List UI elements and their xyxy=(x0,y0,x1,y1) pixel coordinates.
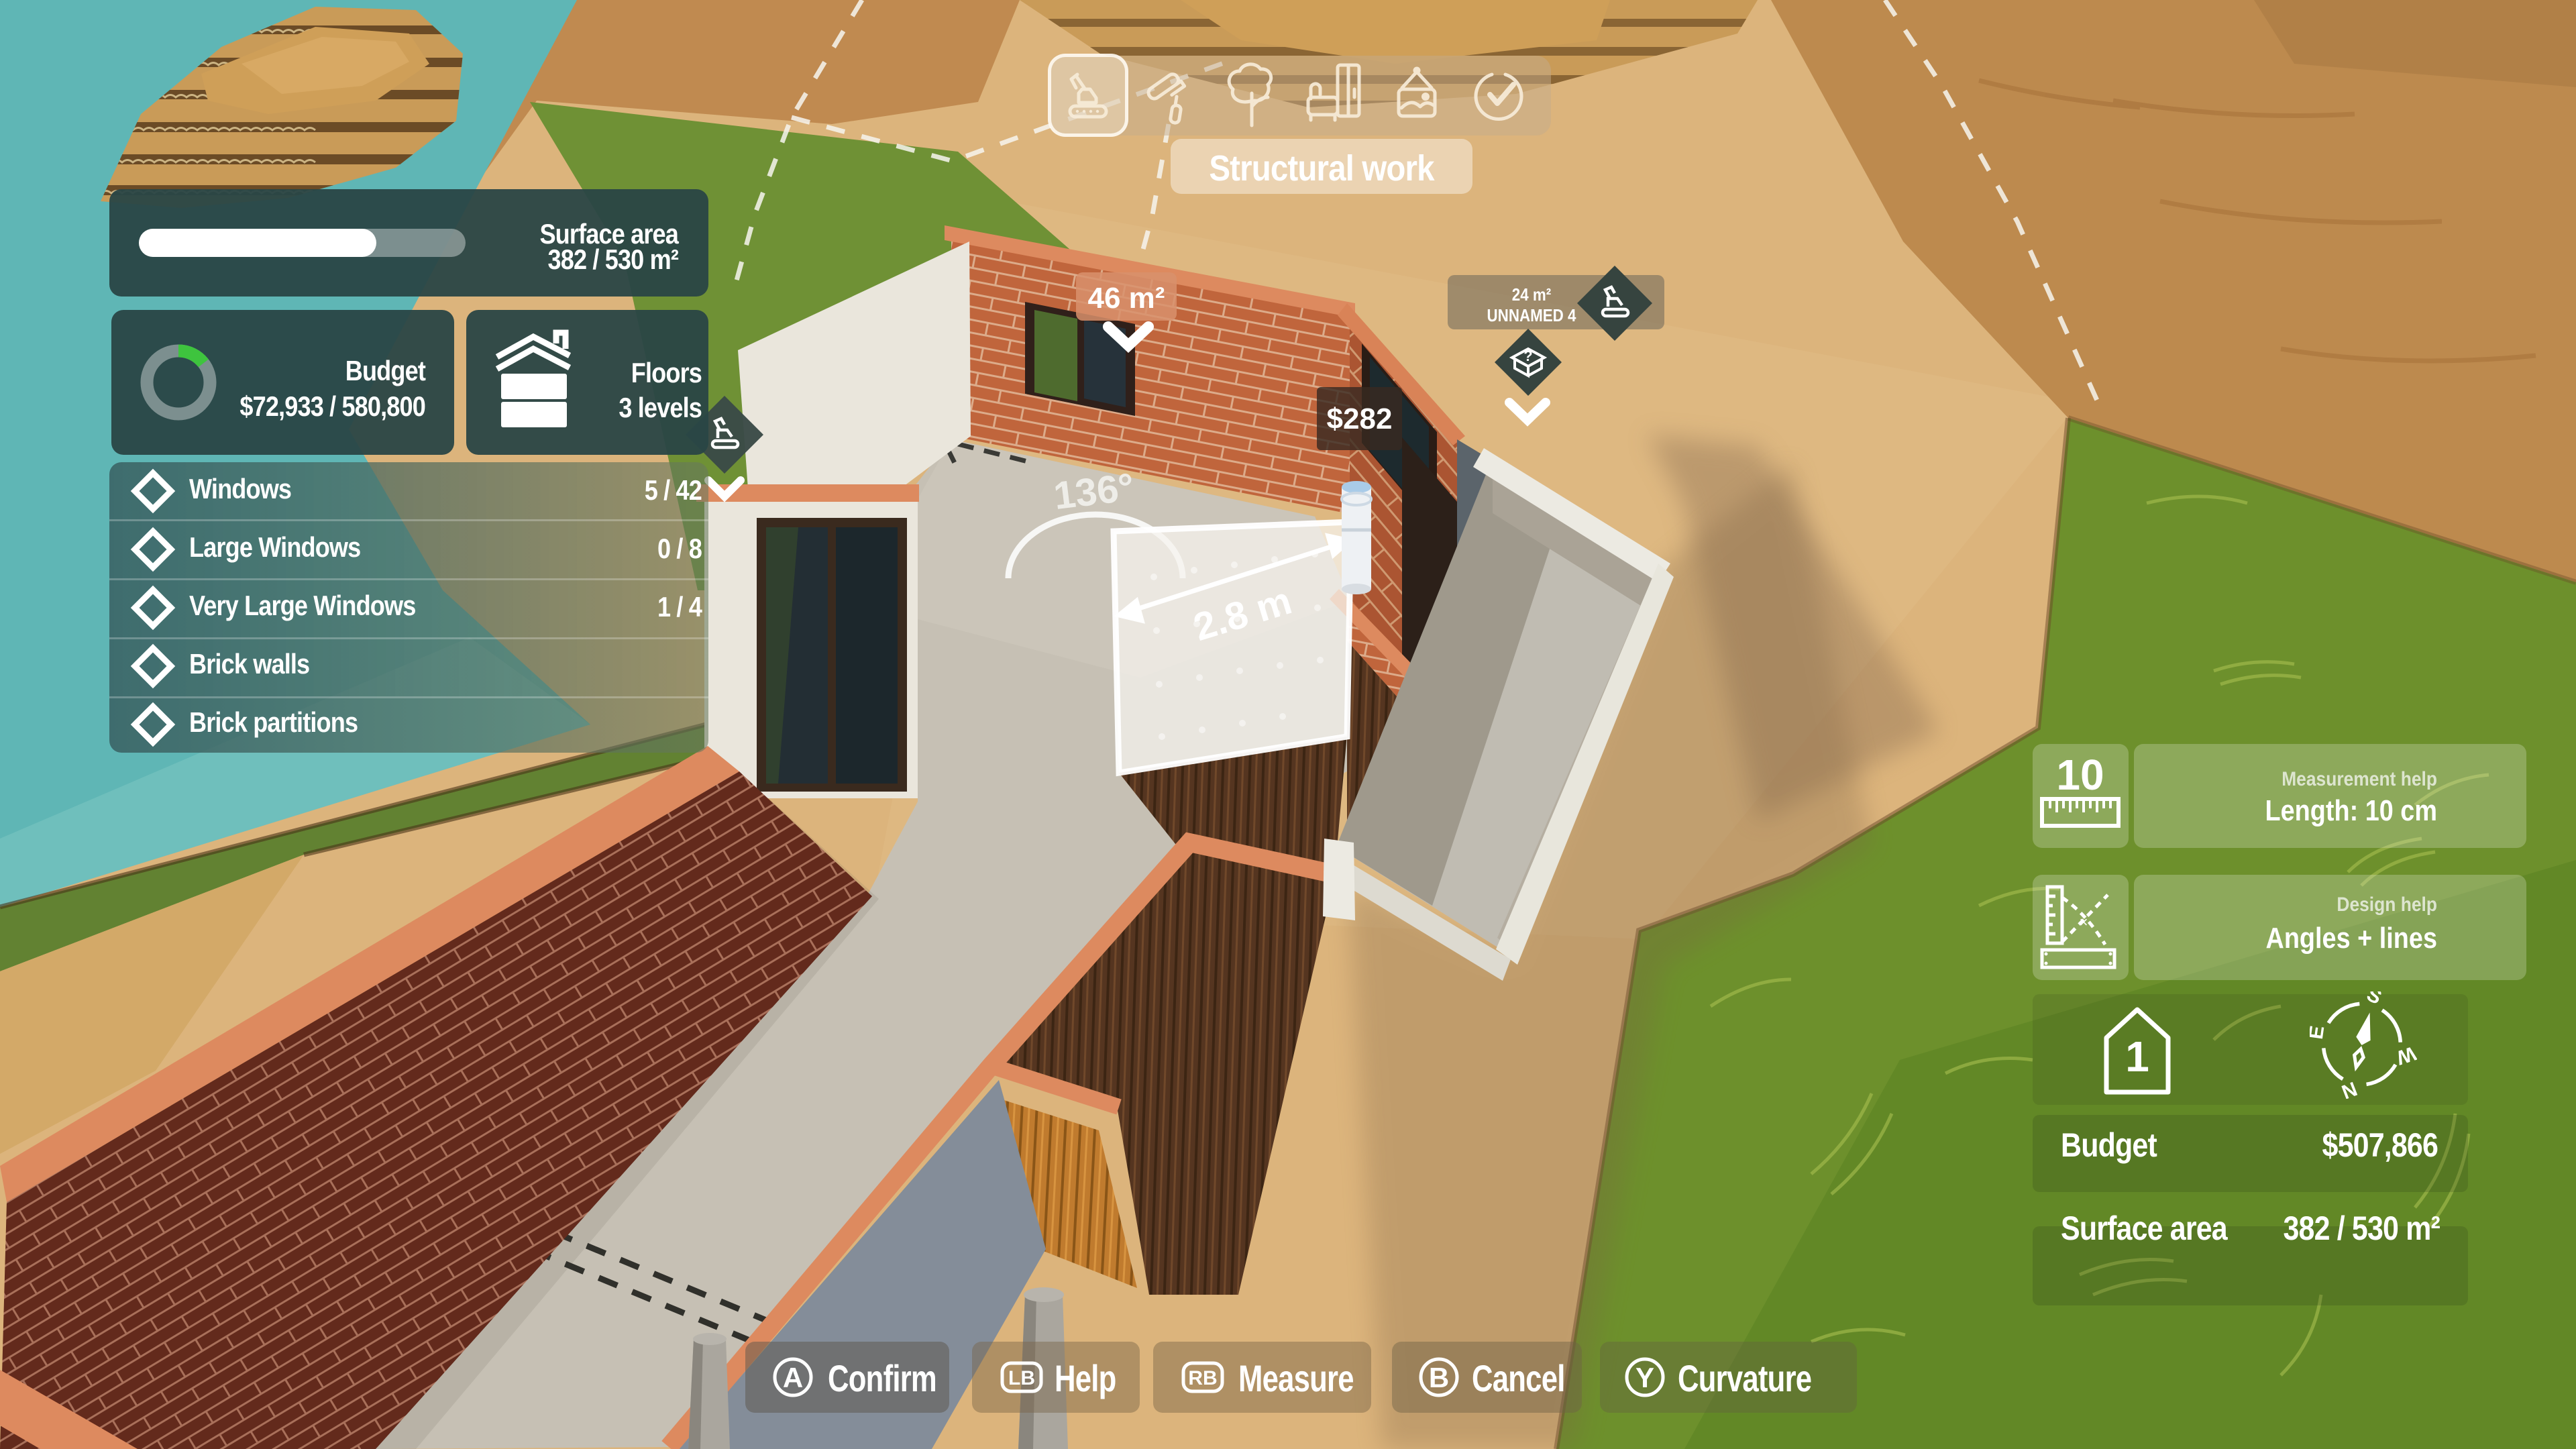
svg-text:S: S xyxy=(2363,991,2385,1009)
svg-text:N: N xyxy=(2339,1078,2361,1099)
svg-text:×: × xyxy=(2080,914,2088,930)
svg-text:Y: Y xyxy=(1635,1362,1654,1393)
svg-text:?: ? xyxy=(1523,347,1532,364)
svg-text:RB: RB xyxy=(1188,1367,1217,1389)
svg-text:A: A xyxy=(783,1362,803,1393)
svg-text:W: W xyxy=(2394,1042,2417,1069)
svg-text:10: 10 xyxy=(2056,751,2104,799)
svg-text:LB: LB xyxy=(1008,1367,1035,1389)
svg-text:E: E xyxy=(2310,1024,2328,1040)
svg-text:B: B xyxy=(1429,1362,1449,1393)
svg-text:1: 1 xyxy=(2125,1032,2149,1081)
